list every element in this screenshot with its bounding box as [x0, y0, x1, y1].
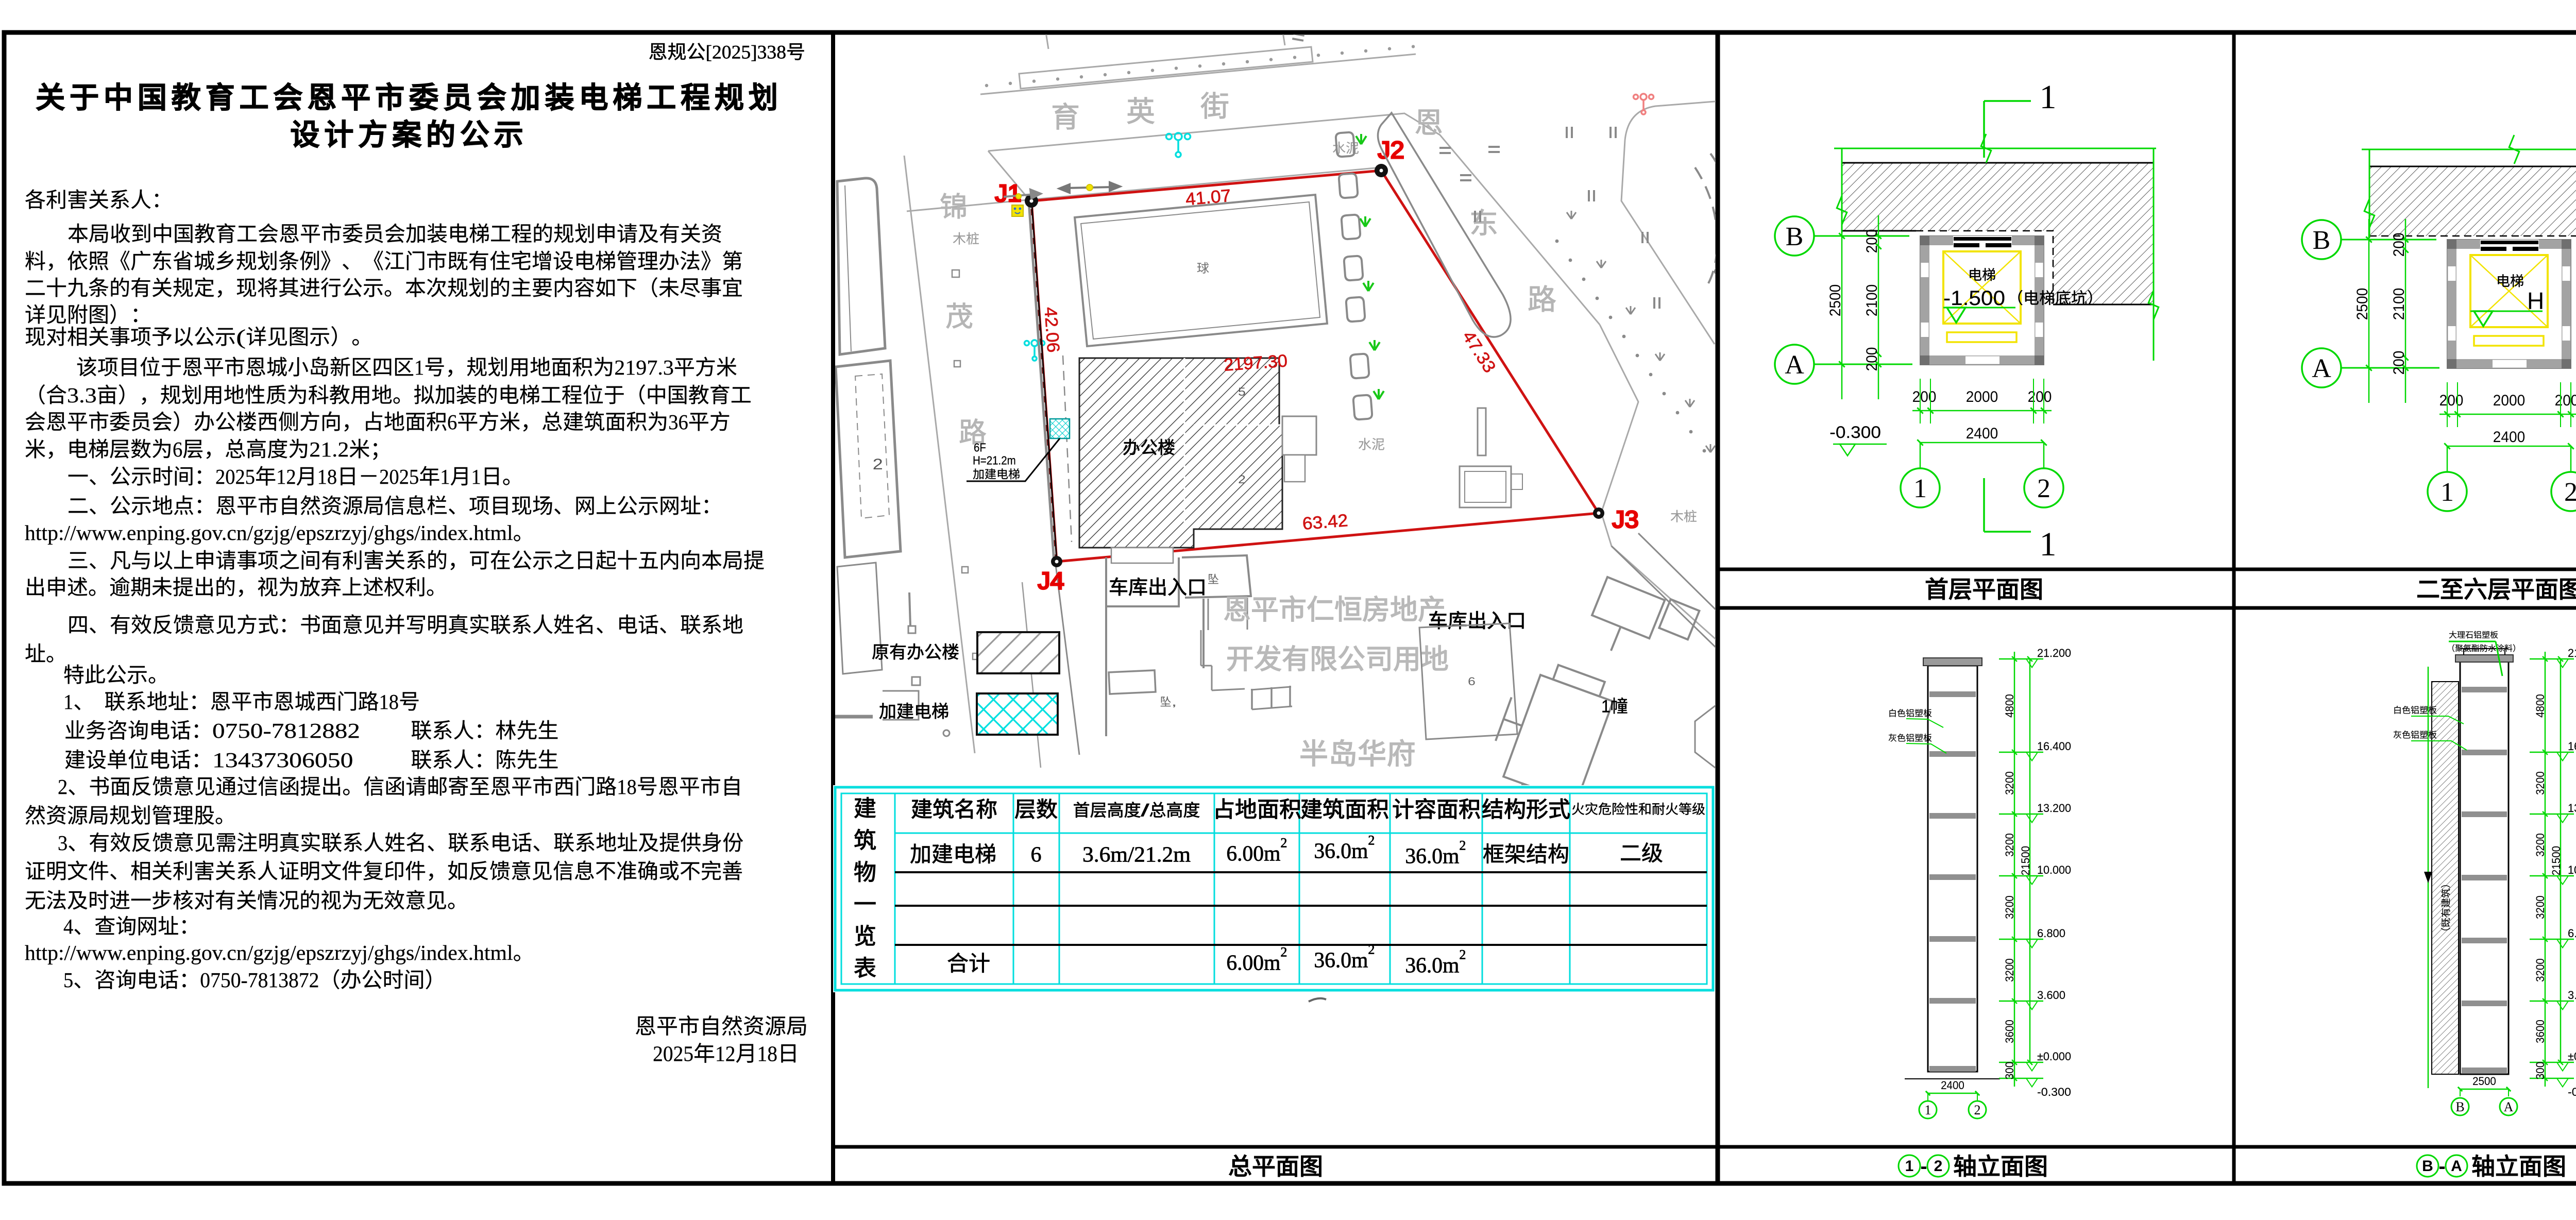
svg-text:2: 2 — [1934, 1158, 1943, 1175]
svg-text:21500: 21500 — [2550, 846, 2563, 875]
svg-text:2000: 2000 — [2493, 392, 2525, 409]
svg-text:12: 12 — [276, 465, 296, 488]
svg-text:http://www.enping.gov.cn/gzjg/: http://www.enping.gov.cn/gzjg/epszrzyj/g… — [25, 941, 513, 964]
svg-text:2025: 2025 — [653, 1043, 693, 1066]
svg-text:63.42: 63.42 — [1302, 511, 1349, 534]
svg-text:1: 1 — [2441, 478, 2454, 507]
svg-text:2025: 2025 — [379, 465, 419, 488]
svg-text:2100: 2100 — [1863, 284, 1880, 316]
svg-text:21.200: 21.200 — [2037, 647, 2071, 659]
svg-text:A: A — [2312, 354, 2331, 383]
svg-text:3.600: 3.600 — [2037, 989, 2065, 1002]
svg-text:13.200: 13.200 — [2037, 802, 2071, 815]
svg-text:6F: 6F — [974, 441, 986, 454]
svg-text:H: H — [2527, 287, 2544, 314]
svg-text:3200: 3200 — [2003, 958, 2016, 982]
svg-text:6.00m: 6.00m — [1226, 842, 1280, 866]
svg-text:10.000: 10.000 — [2568, 863, 2576, 876]
svg-text:1: 1 — [414, 355, 424, 379]
svg-text:1: 1 — [2040, 78, 2057, 116]
svg-text:3200: 3200 — [2003, 771, 2016, 795]
svg-text:3200: 3200 — [2534, 771, 2547, 795]
svg-text:0750-7813872: 0750-7813872 — [200, 968, 319, 992]
svg-text:2400: 2400 — [1941, 1079, 1964, 1092]
svg-text:1: 1 — [440, 465, 450, 488]
svg-text:http://www.enping.gov.cn/gzjg/: http://www.enping.gov.cn/gzjg/epszrzyj/g… — [25, 521, 513, 545]
svg-text:[2025]338: [2025]338 — [705, 42, 786, 63]
svg-text:1: 1 — [2040, 526, 2057, 563]
svg-text:21.200: 21.200 — [2568, 647, 2576, 659]
svg-text:3: 3 — [58, 831, 67, 855]
svg-text:0750-7812882: 0750-7812882 — [212, 719, 411, 742]
svg-text:10.000: 10.000 — [2037, 863, 2071, 876]
svg-text:36.0m: 36.0m — [1314, 840, 1368, 863]
svg-text:1: 1 — [1925, 1103, 1931, 1117]
svg-text:200: 200 — [2391, 351, 2408, 375]
svg-text:J3: J3 — [1612, 506, 1639, 533]
svg-text:3600: 3600 — [2534, 1020, 2547, 1043]
svg-text:36.0m: 36.0m — [1405, 845, 1459, 869]
svg-text:3200: 3200 — [2534, 895, 2547, 919]
svg-text:J4: J4 — [1038, 567, 1064, 594]
svg-text:3600: 3600 — [2003, 1020, 2016, 1043]
svg-text:2100: 2100 — [2391, 288, 2408, 320]
svg-text:36.0m: 36.0m — [1314, 949, 1368, 973]
svg-text:6.00m: 6.00m — [1226, 952, 1280, 975]
svg-text:200: 200 — [1912, 388, 1937, 405]
svg-text:B: B — [1786, 222, 1804, 251]
svg-text:±0.000: ±0.000 — [2037, 1050, 2071, 1063]
svg-text:3.3: 3.3 — [67, 383, 97, 407]
svg-text:2: 2 — [58, 775, 67, 799]
svg-text:16.400: 16.400 — [2568, 740, 2576, 753]
svg-text:±0.000: ±0.000 — [2568, 1050, 2576, 1063]
svg-text:(: ( — [236, 325, 246, 349]
svg-text:2: 2 — [1368, 833, 1375, 848]
svg-text:18: 18 — [317, 465, 337, 488]
svg-text:2500: 2500 — [2472, 1075, 2496, 1088]
svg-text:13.200: 13.200 — [2568, 802, 2576, 815]
svg-text:2: 2 — [2037, 474, 2050, 503]
svg-text:21.2: 21.2 — [309, 437, 349, 461]
svg-text:2400: 2400 — [2493, 429, 2525, 446]
svg-text:200: 200 — [2439, 392, 2464, 409]
svg-text:B: B — [2455, 1099, 2464, 1114]
svg-text:4800: 4800 — [2003, 694, 2016, 718]
svg-text:6: 6 — [447, 410, 457, 434]
svg-text:3200: 3200 — [2003, 895, 2016, 919]
svg-text:2500: 2500 — [1827, 284, 1844, 316]
svg-text:1: 1 — [1905, 1158, 1914, 1175]
svg-text:/: / — [1141, 801, 1150, 820]
svg-text:2000: 2000 — [1966, 388, 1998, 405]
svg-text:6.800: 6.800 — [2568, 927, 2576, 940]
svg-text:2500: 2500 — [2354, 288, 2371, 320]
svg-text:200: 200 — [1863, 229, 1880, 253]
svg-text:A: A — [2504, 1099, 2514, 1114]
svg-text:200: 200 — [2028, 388, 2052, 405]
svg-text:42.06: 42.06 — [1040, 307, 1063, 353]
svg-text:6: 6 — [1031, 843, 1042, 867]
svg-text:2: 2 — [868, 456, 883, 473]
svg-text:,: , — [1172, 696, 1177, 708]
svg-text:J1: J1 — [995, 180, 1022, 207]
svg-text:6: 6 — [1464, 675, 1476, 688]
svg-text:2400: 2400 — [1966, 425, 1998, 442]
svg-text:200: 200 — [1863, 347, 1880, 371]
svg-text:18: 18 — [617, 775, 637, 799]
svg-text:1: 1 — [1601, 697, 1611, 717]
svg-text:-: - — [2438, 1155, 2445, 1178]
svg-text:1: 1 — [1913, 474, 1927, 503]
svg-text:300: 300 — [2003, 1062, 2016, 1079]
svg-text:-: - — [1920, 1155, 1927, 1178]
svg-text:36.0m: 36.0m — [1405, 954, 1459, 978]
svg-text:2197.3: 2197.3 — [614, 355, 674, 379]
svg-text:200: 200 — [2391, 233, 2408, 257]
svg-text:13437306050: 13437306050 — [212, 748, 411, 772]
svg-text:2: 2 — [1974, 1103, 1981, 1117]
svg-text:3200: 3200 — [2003, 833, 2016, 857]
svg-text:2: 2 — [2564, 478, 2576, 507]
svg-text:2: 2 — [1459, 947, 1466, 962]
svg-text:-0.300: -0.300 — [1829, 423, 1881, 442]
svg-text:21500: 21500 — [2019, 846, 2032, 875]
svg-text:3200: 3200 — [2534, 958, 2547, 982]
svg-text:5: 5 — [1234, 385, 1246, 398]
svg-text:1: 1 — [63, 690, 73, 714]
svg-text:18: 18 — [379, 690, 399, 714]
svg-text:2: 2 — [1459, 838, 1466, 853]
svg-text:-1.500: -1.500 — [1943, 287, 2005, 310]
svg-text:16.400: 16.400 — [2037, 740, 2071, 753]
svg-text:2: 2 — [1280, 836, 1287, 851]
svg-text:300: 300 — [2534, 1062, 2547, 1079]
svg-text:2025: 2025 — [215, 465, 255, 488]
svg-text:2: 2 — [1234, 473, 1246, 486]
svg-text:4800: 4800 — [2534, 694, 2547, 718]
svg-text:2: 2 — [1280, 945, 1287, 960]
svg-text:1: 1 — [471, 465, 481, 488]
svg-text:18: 18 — [757, 1043, 777, 1066]
svg-text:H=21.2m: H=21.2m — [973, 454, 1016, 467]
svg-text:3.600: 3.600 — [2568, 989, 2576, 1002]
svg-text:200: 200 — [2555, 392, 2576, 409]
svg-text:5: 5 — [63, 968, 73, 992]
svg-text:B: B — [2422, 1158, 2433, 1175]
svg-text:-0.300: -0.300 — [2037, 1086, 2071, 1098]
svg-text:12: 12 — [715, 1043, 735, 1066]
svg-text:3200: 3200 — [2534, 833, 2547, 857]
svg-text:A: A — [1785, 350, 1804, 380]
svg-text:6.800: 6.800 — [2037, 927, 2065, 940]
svg-text:-0.300: -0.300 — [2568, 1086, 2576, 1098]
svg-text:4: 4 — [63, 914, 73, 938]
svg-text:6: 6 — [173, 437, 182, 461]
svg-text:A: A — [2451, 1158, 2462, 1175]
svg-text:B: B — [2313, 226, 2331, 255]
svg-text:2: 2 — [1368, 942, 1375, 957]
svg-text:3.6m/21.2m: 3.6m/21.2m — [1082, 843, 1191, 867]
svg-text:36: 36 — [668, 410, 688, 434]
